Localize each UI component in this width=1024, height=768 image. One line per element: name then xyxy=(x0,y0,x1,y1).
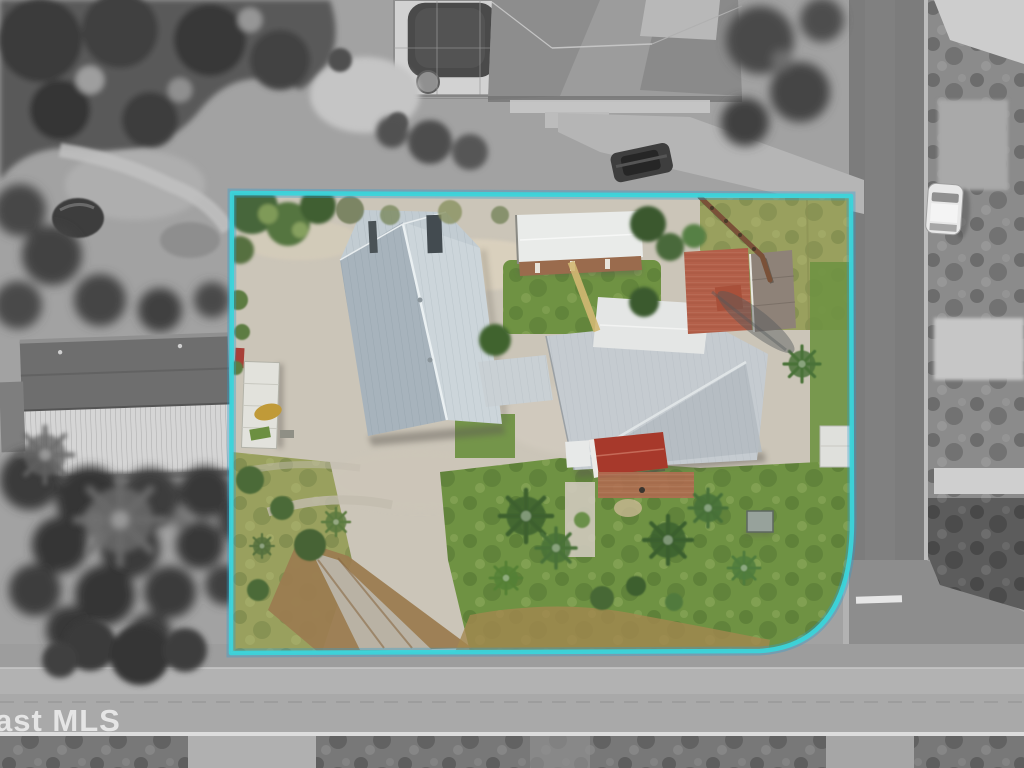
neighbor-driveway xyxy=(934,468,1024,494)
white-car xyxy=(925,183,972,239)
right-scrub-lots xyxy=(928,0,1024,610)
white-shed xyxy=(516,211,643,276)
property-interior xyxy=(220,180,870,670)
road-edge-line xyxy=(0,732,1024,736)
gray-palm-tree xyxy=(17,427,73,483)
neighbor-house-roof xyxy=(488,0,742,128)
front-walk xyxy=(510,100,710,113)
driveway-apron xyxy=(826,736,914,768)
gray-palm-tree xyxy=(76,476,164,564)
aerial-photo: ast MLS xyxy=(0,0,1024,768)
windshield xyxy=(931,192,959,203)
driveway-apron xyxy=(188,736,316,768)
roof-vent-slot xyxy=(368,221,378,253)
utility-box xyxy=(747,511,773,532)
sandy-vacant-lot xyxy=(934,318,1024,380)
spa xyxy=(417,71,439,93)
roof-vent-slot xyxy=(426,215,442,254)
mls-watermark: ast MLS xyxy=(0,703,121,739)
far-roadside-grass xyxy=(0,736,1024,768)
aerial-photo-canvas xyxy=(0,0,1024,768)
barn-lean-to xyxy=(0,382,26,453)
